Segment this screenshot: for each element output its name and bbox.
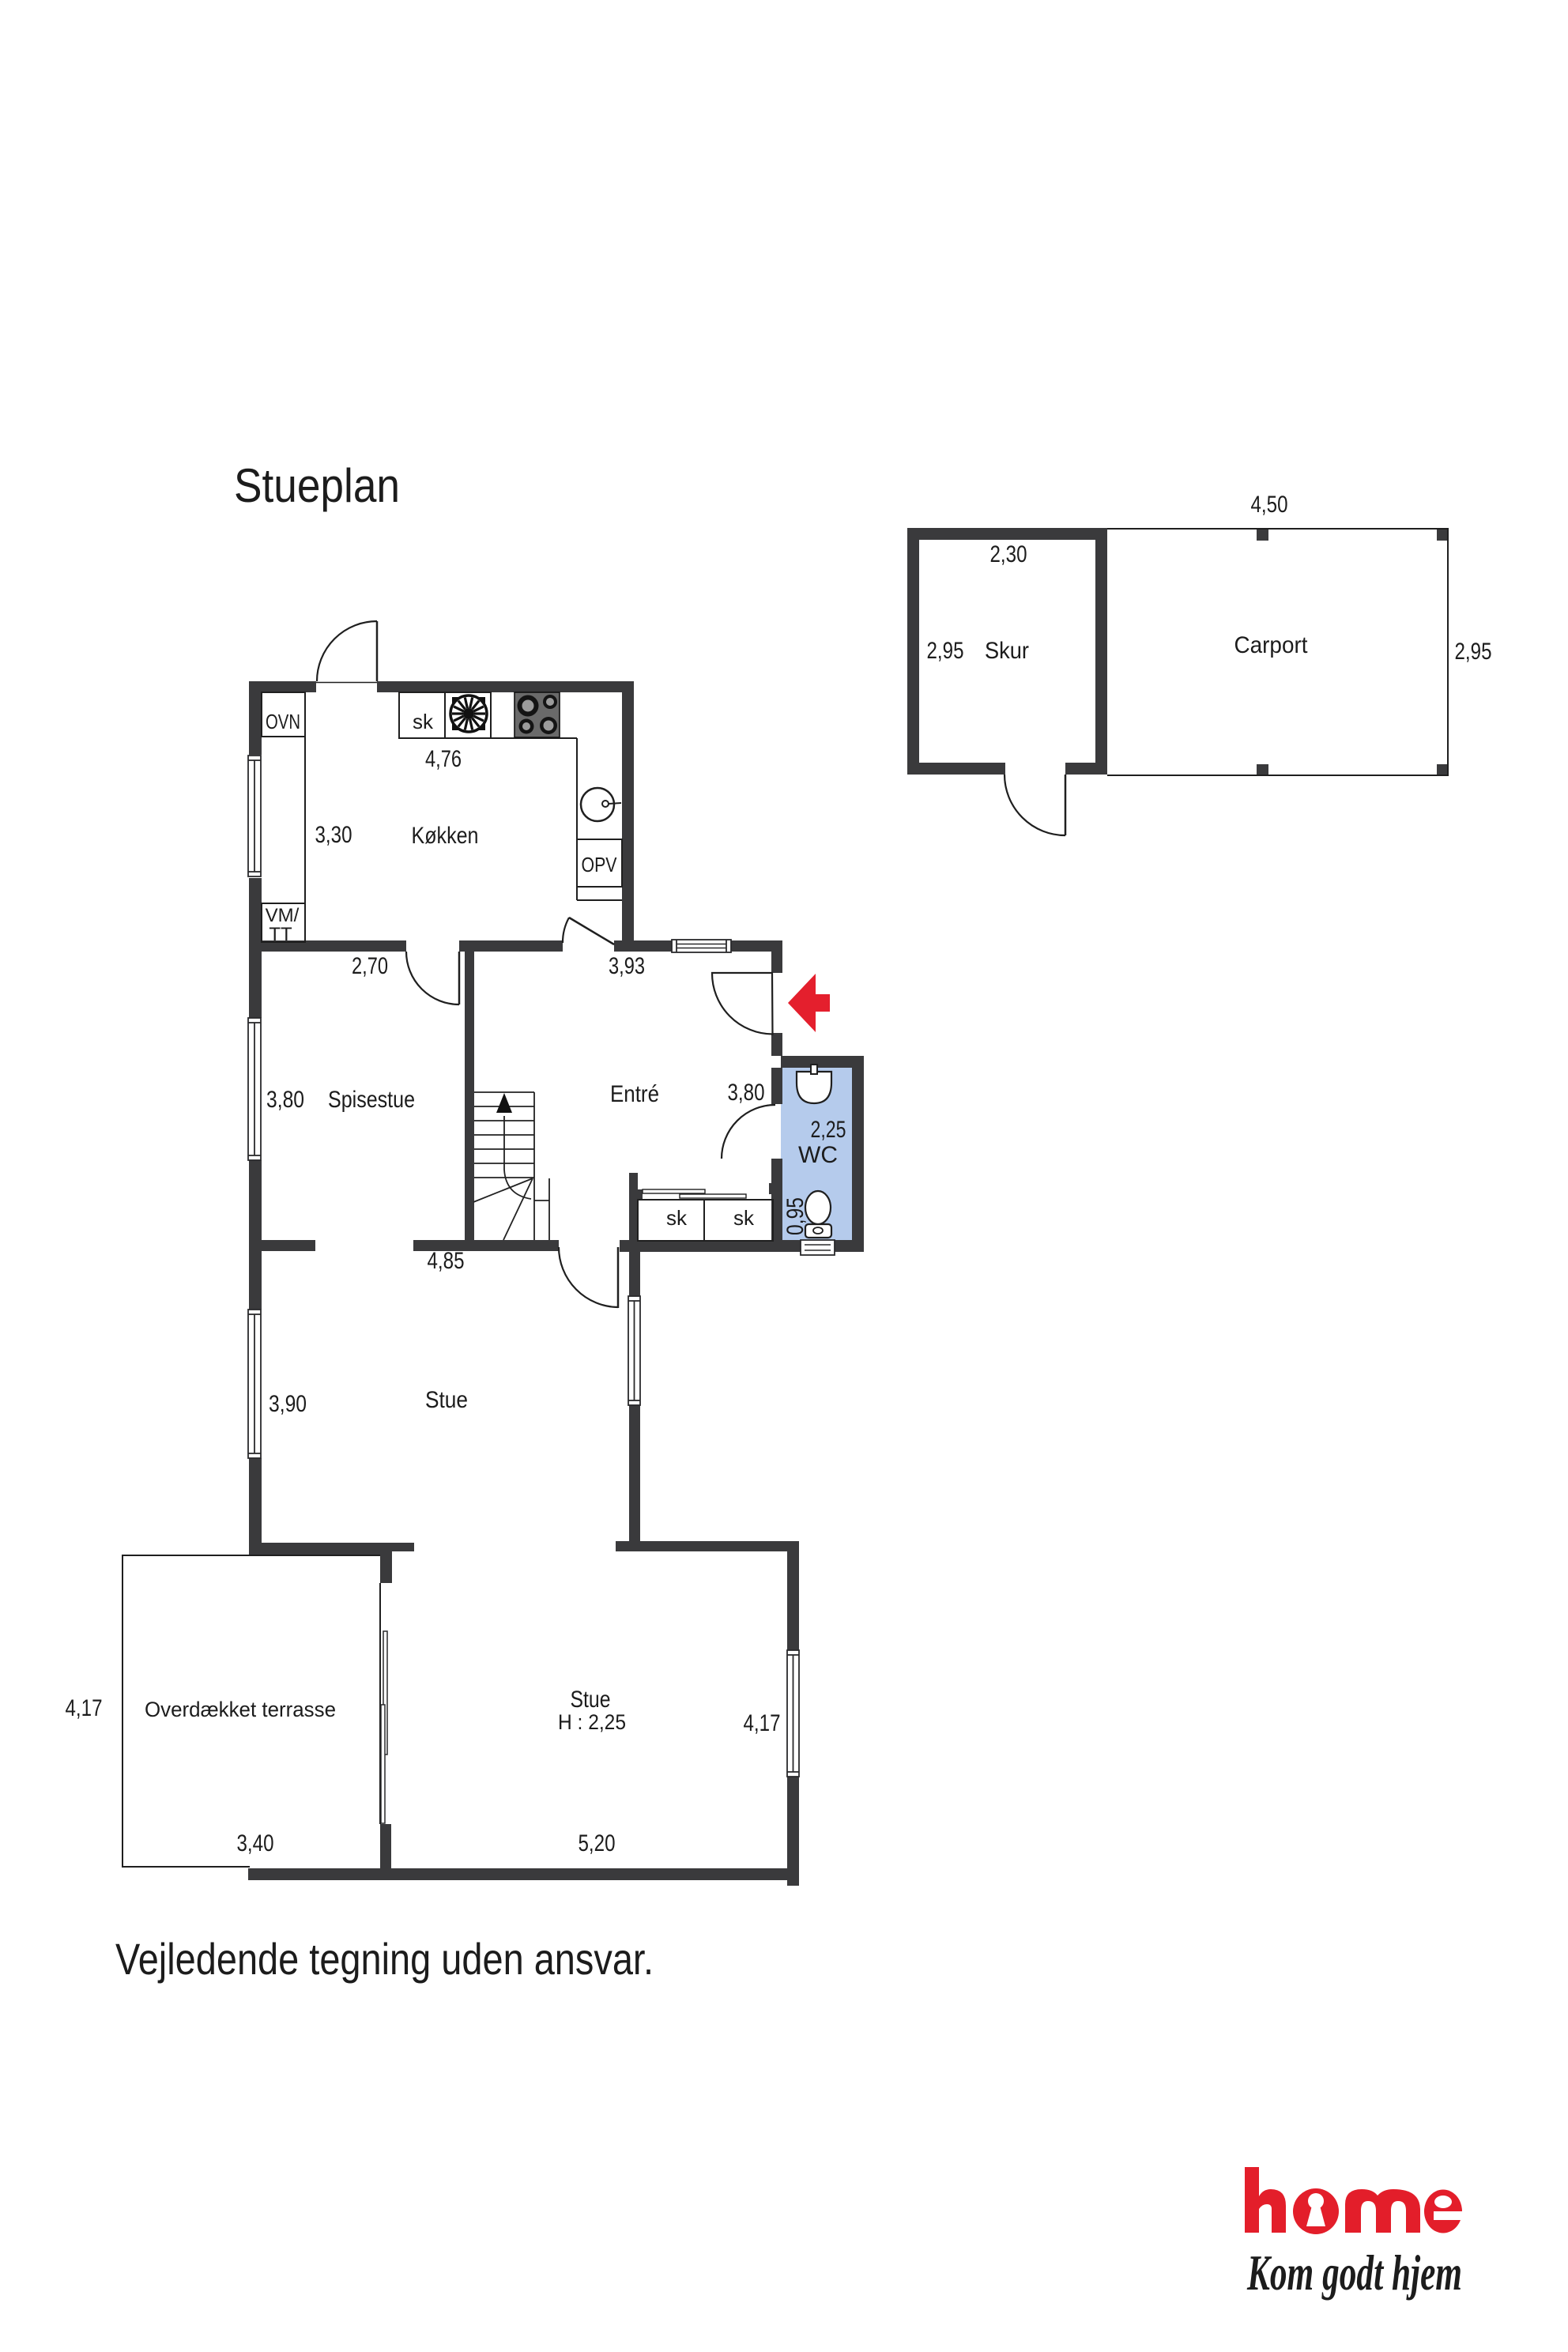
svg-text:2,70: 2,70 — [352, 953, 388, 979]
svg-text:sk: sk — [413, 710, 434, 733]
svg-text:sk: sk — [666, 1206, 688, 1230]
svg-text:H : 2,25: H : 2,25 — [558, 1710, 626, 1734]
svg-text:2,30: 2,30 — [990, 541, 1027, 567]
svg-text:3,80: 3,80 — [728, 1080, 765, 1106]
svg-text:Overdækket terrasse: Overdækket terrasse — [145, 1698, 336, 1721]
svg-text:Kom godt hjem: Kom godt hjem — [1246, 2245, 1462, 2301]
svg-text:2,95: 2,95 — [927, 638, 964, 664]
svg-text:4,17: 4,17 — [66, 1695, 103, 1721]
svg-text:3,40: 3,40 — [237, 1830, 274, 1856]
svg-text:Vejledende tegning uden ansvar: Vejledende tegning uden ansvar. — [115, 1934, 654, 1984]
svg-text:2,95: 2,95 — [1455, 639, 1492, 665]
svg-text:Skur: Skur — [985, 638, 1029, 664]
svg-text:VM/: VM/ — [266, 905, 300, 926]
svg-text:4,76: 4,76 — [425, 746, 462, 772]
svg-text:2,25: 2,25 — [811, 1117, 846, 1143]
svg-text:sk: sk — [733, 1206, 755, 1230]
svg-text:Køkken: Køkken — [412, 823, 479, 849]
svg-text:4,17: 4,17 — [744, 1710, 781, 1736]
svg-text:4,85: 4,85 — [428, 1248, 465, 1274]
svg-text:3,80: 3,80 — [266, 1087, 304, 1113]
svg-text:Carport: Carport — [1234, 632, 1309, 658]
svg-text:WC: WC — [798, 1142, 838, 1168]
svg-text:Spisestue: Spisestue — [328, 1087, 415, 1113]
svg-text:5,20: 5,20 — [579, 1830, 616, 1856]
svg-text:Entré: Entré — [610, 1081, 659, 1107]
svg-text:3,93: 3,93 — [609, 953, 645, 979]
svg-text:3,90: 3,90 — [269, 1391, 307, 1417]
svg-text:Stue: Stue — [571, 1687, 611, 1713]
svg-text:Stue: Stue — [425, 1387, 468, 1413]
svg-text:3,30: 3,30 — [315, 822, 352, 848]
svg-text:4,50: 4,50 — [1251, 492, 1288, 518]
svg-text:TT: TT — [269, 924, 292, 945]
svg-text:OPV: OPV — [582, 853, 618, 876]
svg-text:OVN: OVN — [266, 710, 300, 733]
svg-text:Stueplan: Stueplan — [234, 459, 400, 512]
svg-text:0,95: 0,95 — [782, 1197, 808, 1235]
